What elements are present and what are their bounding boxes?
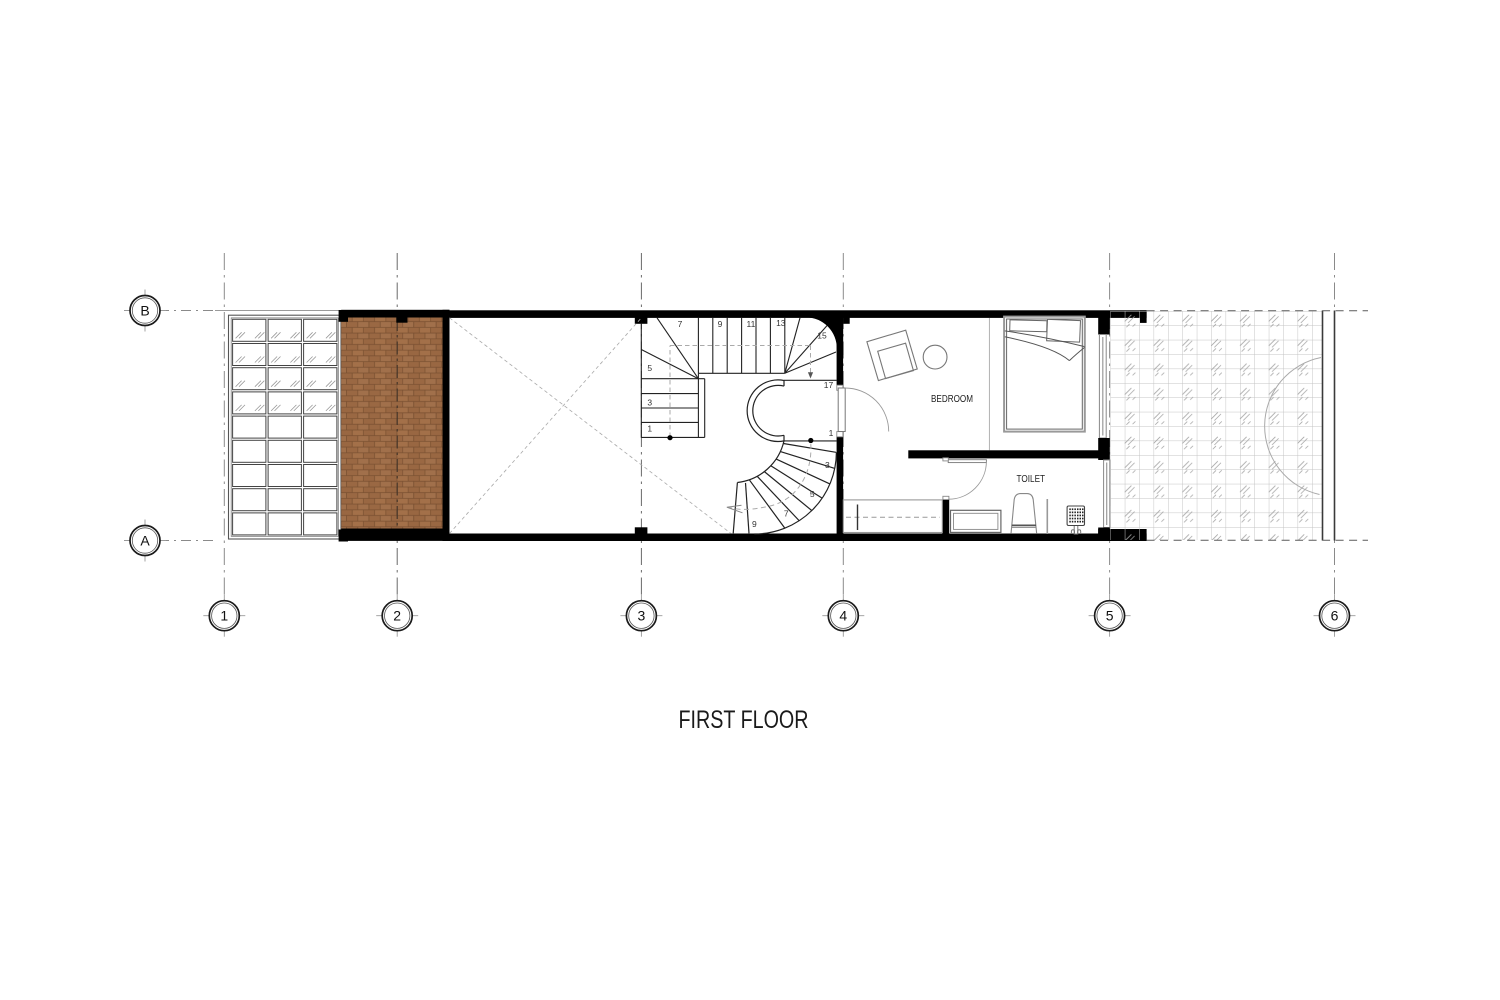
- svg-text:3: 3: [638, 608, 646, 624]
- svg-text:1: 1: [220, 608, 228, 624]
- svg-text:17: 17: [824, 380, 834, 390]
- svg-text:5: 5: [810, 489, 815, 499]
- svg-text:9: 9: [718, 319, 723, 329]
- svg-text:1: 1: [647, 424, 652, 434]
- svg-text:BEDROOM: BEDROOM: [931, 393, 973, 405]
- svg-text:1: 1: [829, 428, 834, 438]
- svg-text:5: 5: [647, 363, 652, 373]
- svg-text:11: 11: [746, 319, 755, 329]
- svg-text:FIRST FLOOR: FIRST FLOOR: [679, 706, 809, 734]
- svg-text:7: 7: [784, 508, 789, 518]
- svg-text:3: 3: [825, 460, 830, 470]
- svg-text:7: 7: [678, 319, 683, 329]
- svg-text:4: 4: [839, 608, 847, 624]
- svg-text:3: 3: [647, 398, 652, 408]
- svg-text:15: 15: [817, 331, 827, 341]
- svg-text:9: 9: [752, 519, 757, 529]
- svg-text:TOILET: TOILET: [1017, 474, 1046, 485]
- svg-text:2: 2: [393, 608, 401, 624]
- svg-text:5: 5: [1106, 608, 1114, 624]
- svg-text:13: 13: [776, 318, 786, 328]
- svg-text:A: A: [140, 533, 150, 549]
- svg-text:6: 6: [1331, 608, 1339, 624]
- svg-text:B: B: [140, 303, 149, 319]
